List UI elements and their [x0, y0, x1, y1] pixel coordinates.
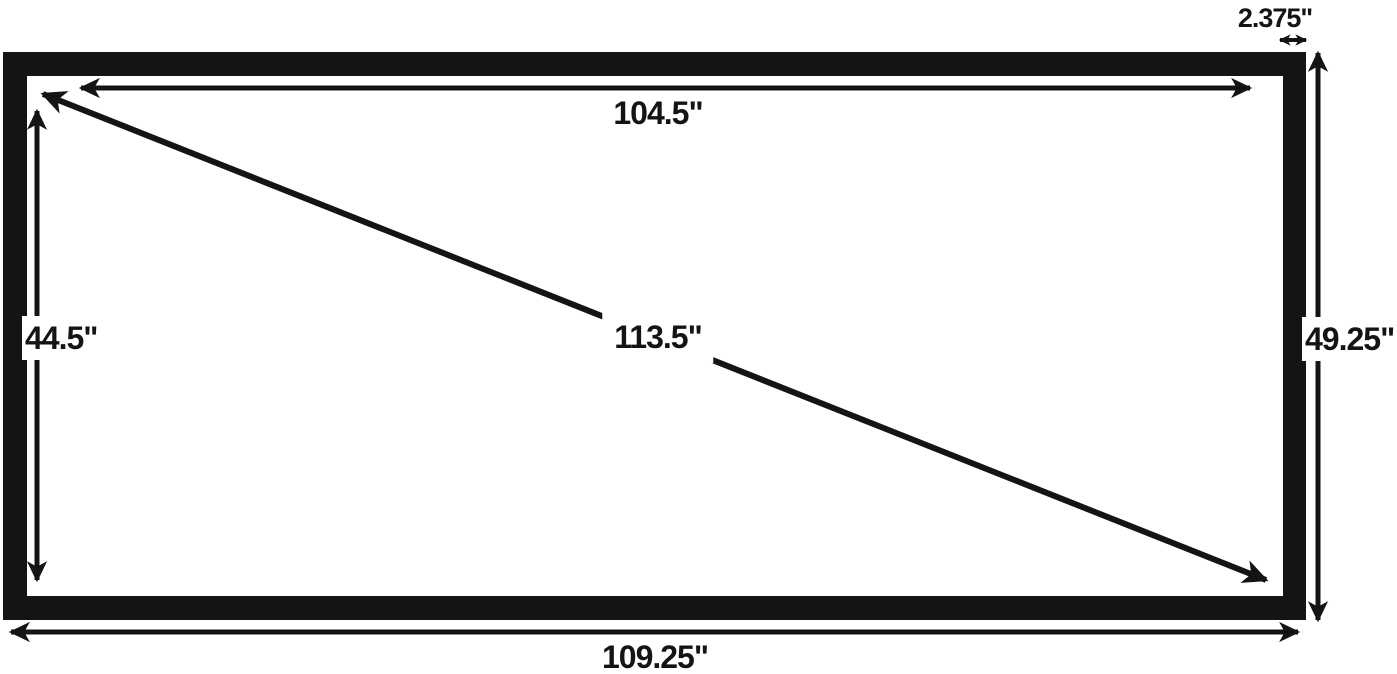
overall-width-label: 109.25"	[602, 641, 708, 673]
frame-width-label: 2.375"	[1238, 5, 1312, 32]
diagonal-label: 113.5"	[602, 311, 713, 363]
screen-dimension-diagram: 104.5" 44.5" 113.5" 49.25" 109.25" 2.375…	[0, 0, 1397, 674]
viewable-width-label: 104.5"	[613, 97, 702, 129]
overall-height-label: 49.25"	[1302, 317, 1397, 361]
viewable-height-label: 44.5"	[22, 316, 100, 360]
